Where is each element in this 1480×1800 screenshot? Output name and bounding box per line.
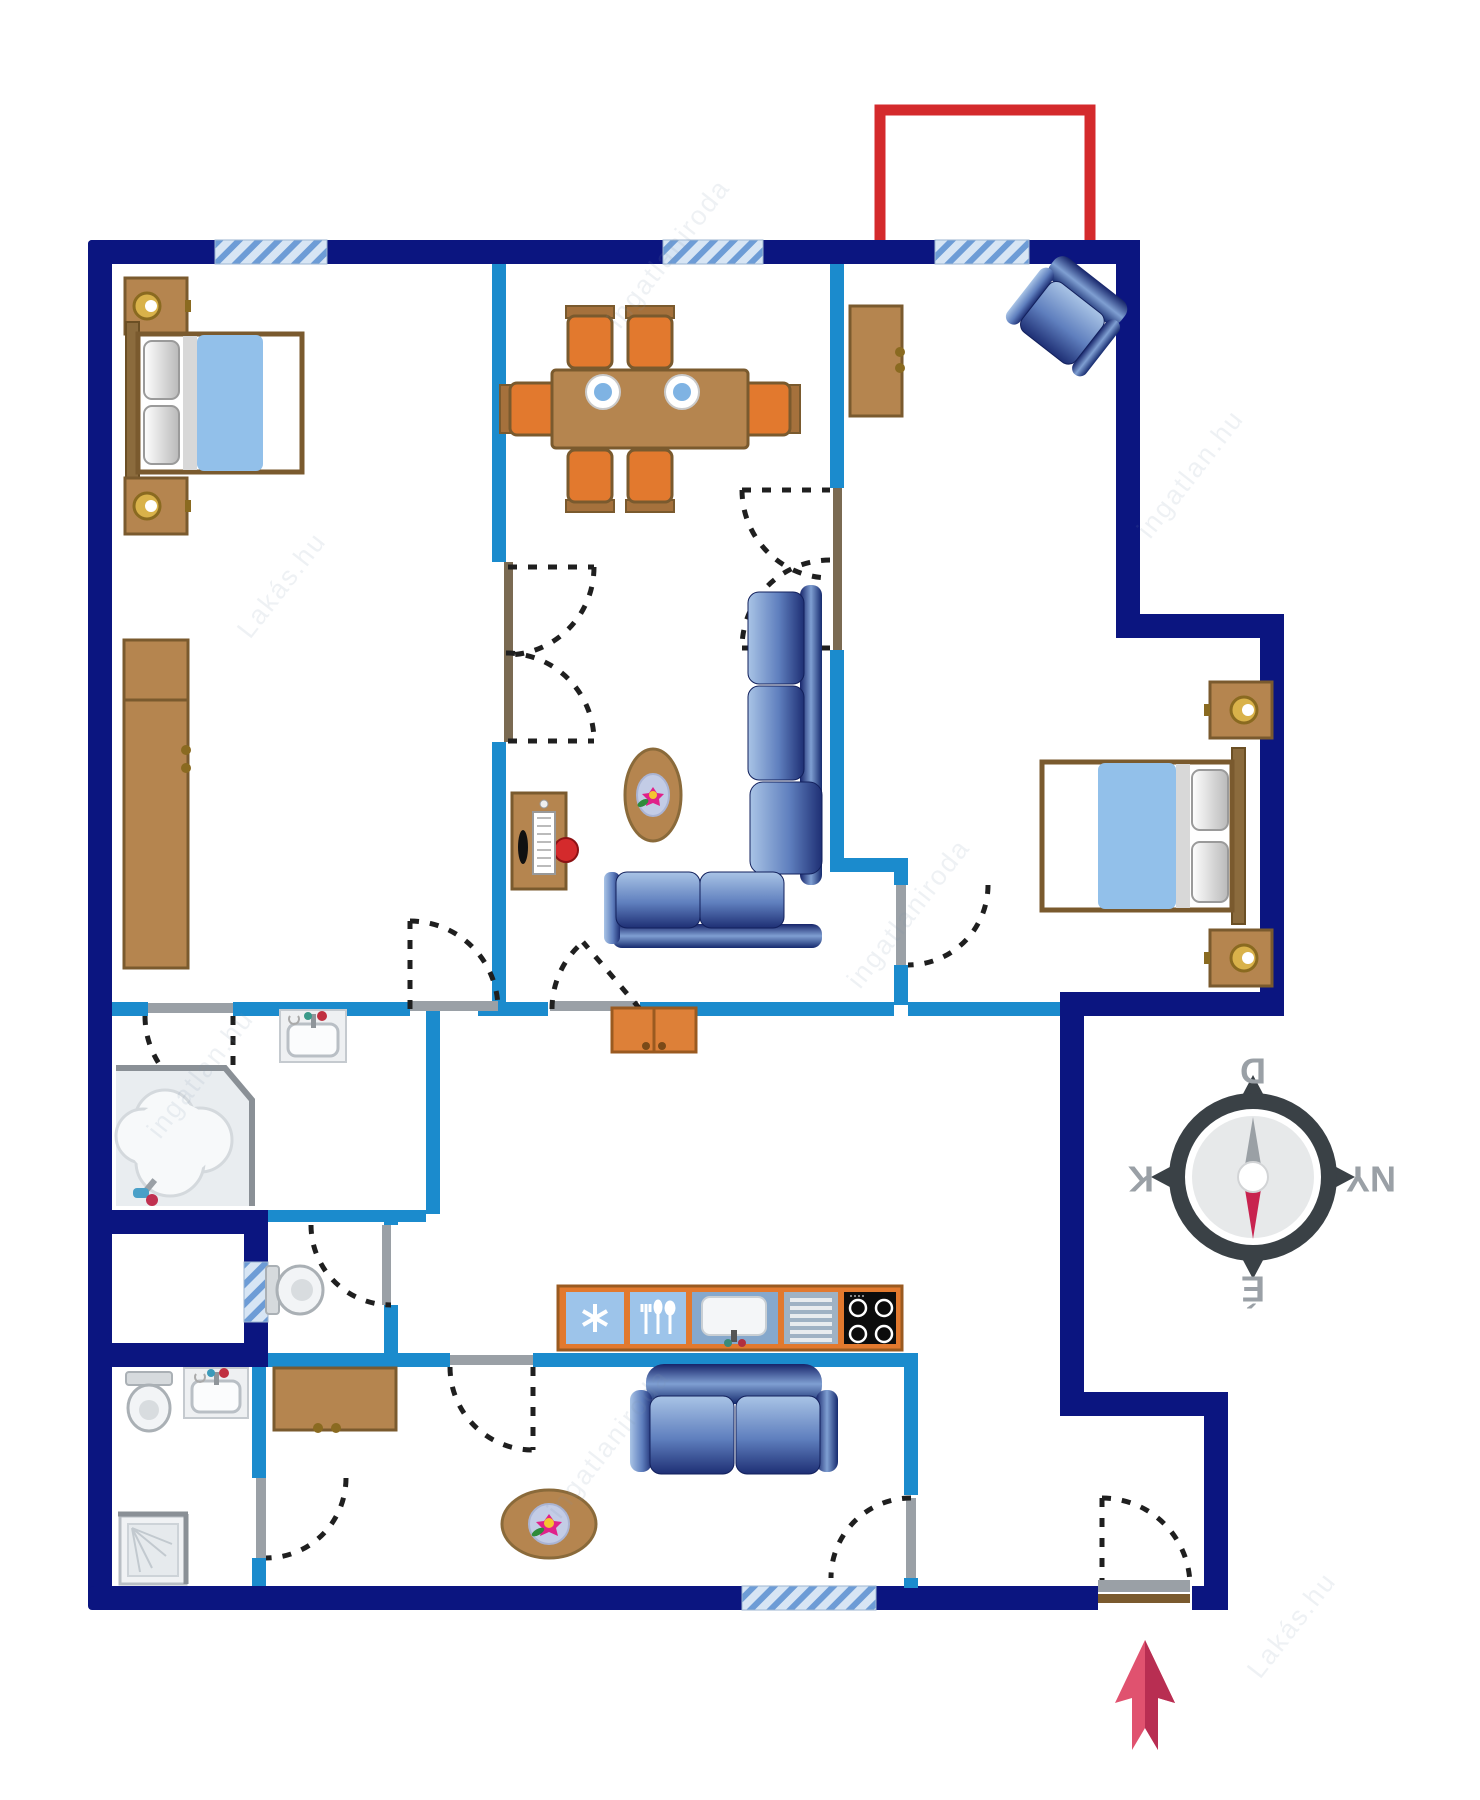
sideboard-cabinet xyxy=(612,1008,696,1052)
door-swing-arc xyxy=(450,1367,533,1450)
door-sill xyxy=(906,1498,916,1578)
mouse-icon xyxy=(518,830,528,864)
floor-plan-drawing: D NY É K Lakás.hu ingatlaniroda ingatlan… xyxy=(0,0,1480,1800)
washbasin xyxy=(184,1368,248,1418)
window-icon xyxy=(215,240,327,264)
entrance-threshold-bar xyxy=(1098,1594,1190,1603)
door-sill xyxy=(256,1478,266,1558)
toilet-tank xyxy=(126,1372,172,1385)
dining-table xyxy=(552,370,748,448)
compass-label-left: K xyxy=(1128,1159,1154,1200)
bedroom-left-furniture xyxy=(124,278,302,968)
sheet-fold xyxy=(1176,764,1190,908)
door-swing-arc xyxy=(266,1478,346,1558)
dining-set xyxy=(500,306,800,512)
blanket xyxy=(197,335,263,471)
door-swing-arc xyxy=(410,921,498,1009)
door-swing-arc xyxy=(552,942,583,1009)
wc-fixtures xyxy=(266,1266,323,1314)
door-swing-arc xyxy=(742,490,830,578)
door-swing-arc xyxy=(506,653,594,741)
hall-bottom-furniture xyxy=(274,1364,838,1558)
faucet-cold xyxy=(304,1012,312,1020)
computer-desk xyxy=(512,793,578,889)
double-bed xyxy=(126,322,302,480)
window-icon xyxy=(935,240,1029,264)
watermark-text: Lakás.hu xyxy=(1241,1566,1342,1683)
blanket xyxy=(1098,763,1176,909)
door-jamb xyxy=(833,488,842,650)
double-bed xyxy=(1042,748,1245,924)
faucet-hot xyxy=(317,1011,327,1021)
nightstand-lamp xyxy=(1204,930,1272,986)
pillow xyxy=(1192,770,1228,830)
bathroom-second-fixtures xyxy=(118,1368,248,1584)
sheet-fold xyxy=(183,336,197,470)
watermark-text: ingatlan.hu xyxy=(1131,404,1250,544)
compass-rose: D NY É K xyxy=(1128,1051,1396,1310)
entrance-arrow xyxy=(1115,1640,1175,1750)
entrance-threshold xyxy=(1098,1580,1190,1592)
watermark-text: ingatlaniroda xyxy=(841,833,976,994)
shower-cabin xyxy=(118,1514,188,1584)
desk-stool xyxy=(554,838,578,862)
compass-label-bottom: É xyxy=(1241,1269,1265,1310)
nightstand-lamp xyxy=(125,478,191,534)
coffee-table-oval xyxy=(625,749,681,841)
compass-label-right: NY xyxy=(1346,1159,1396,1200)
door-sill xyxy=(410,1001,498,1011)
watermark-text: Lakás.hu xyxy=(231,526,332,643)
armchair xyxy=(1003,249,1136,380)
desk-cabinet xyxy=(274,1368,396,1433)
pillow xyxy=(1192,842,1228,902)
pillow xyxy=(144,341,179,399)
door-leaf xyxy=(583,942,640,1009)
door-swing-arc xyxy=(1102,1498,1190,1586)
compass-label-top: D xyxy=(1240,1051,1266,1092)
door-swing-arc xyxy=(831,1498,911,1578)
door-sill xyxy=(450,1355,533,1365)
washbasin xyxy=(280,1010,346,1062)
window-icon xyxy=(742,1586,876,1610)
kitchen-counter xyxy=(558,1286,902,1350)
window-icon xyxy=(244,1262,268,1322)
door-sill xyxy=(148,1003,233,1013)
cabinet xyxy=(850,306,905,416)
floor-plan-page: D NY É K Lakás.hu ingatlaniroda ingatlan… xyxy=(0,0,1480,1800)
door-swing-arc xyxy=(506,567,594,655)
nightstand-lamp xyxy=(1204,682,1272,738)
balcony-outline xyxy=(880,110,1090,246)
wardrobe xyxy=(124,640,191,968)
door-sill xyxy=(382,1225,391,1305)
pillow xyxy=(144,406,179,464)
kitchen-hall-furniture xyxy=(558,1008,902,1350)
